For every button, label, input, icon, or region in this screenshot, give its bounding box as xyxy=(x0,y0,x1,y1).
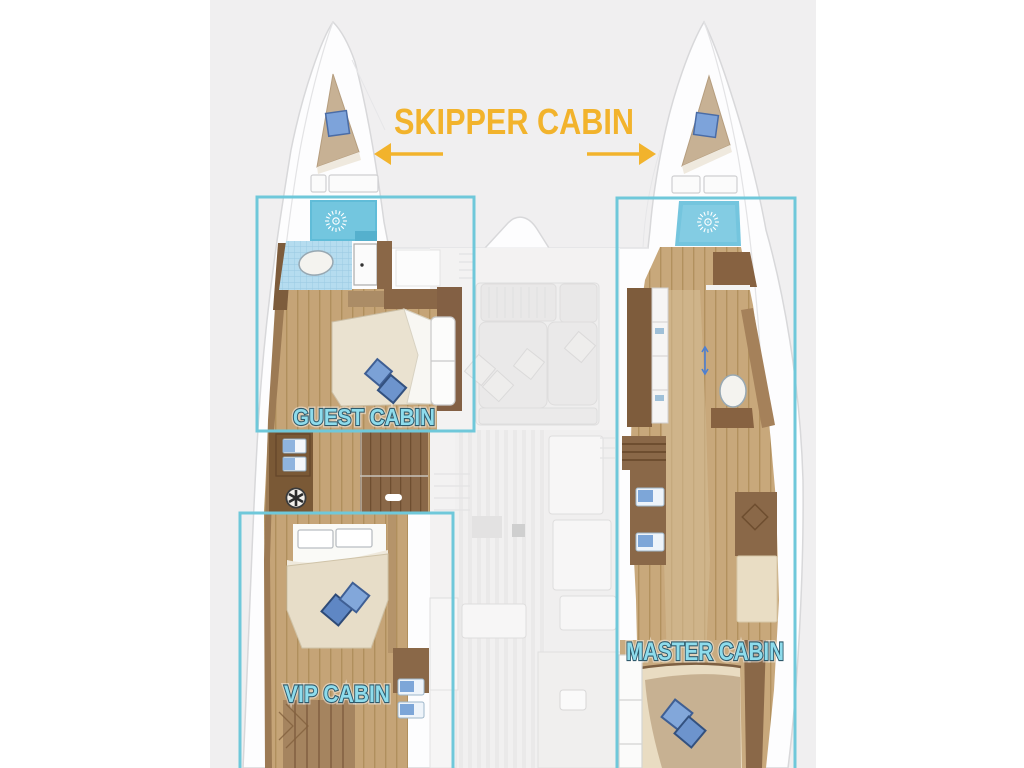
svg-text:GUEST CABIN: GUEST CABIN xyxy=(293,404,435,430)
svg-text:VIP CABIN: VIP CABIN xyxy=(284,681,390,708)
svg-text:MASTER CABIN: MASTER CABIN xyxy=(626,638,784,666)
svg-text:SKIPPER CABIN: SKIPPER CABIN xyxy=(394,101,634,142)
